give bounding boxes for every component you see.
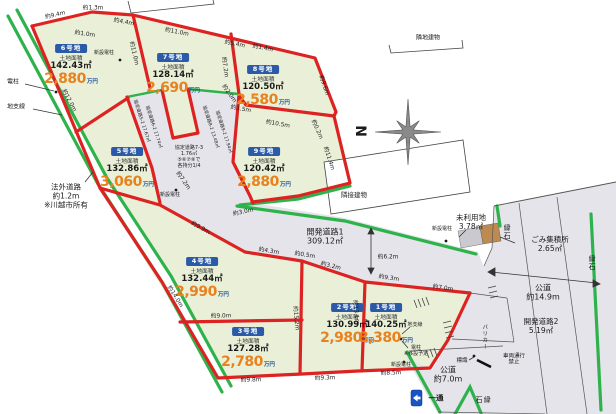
map-note: 地支線: [407, 323, 422, 329]
map-note: バリカー: [481, 324, 487, 350]
dimension-label: 約9.4m: [44, 7, 66, 20]
map-note: 新設電柱: [94, 51, 114, 57]
dimension-label: 約9.8m: [241, 374, 262, 384]
map-note: 縁石: [503, 224, 511, 240]
map-note: N: [355, 125, 372, 137]
plot-price: 2,880万円: [237, 175, 291, 190]
plot-price: 3,380万円: [359, 331, 413, 346]
plot-price: 2,780万円: [221, 355, 275, 370]
plot-price: 3,060万円: [100, 175, 154, 190]
dimension-label: 約9.3m: [378, 271, 400, 283]
dimension-label: 約11.4m: [322, 145, 338, 171]
map-note: ごみ集積所 2.65㎡: [531, 236, 569, 254]
plot-price-unit: 万円: [87, 79, 98, 85]
plot-price: 2,990万円: [175, 285, 229, 300]
map-note: 縁石: [475, 393, 492, 407]
plot-area-value: 142.43㎡: [44, 62, 98, 71]
map-note: 開発道路2 5.19㎡: [524, 318, 559, 336]
dimension-label: 約7.0m: [432, 281, 454, 293]
plot-card-6: 4号地土地面積132.44㎡2,990万円: [175, 250, 229, 299]
dimension-label: 約7.2m: [174, 169, 193, 191]
plot-card-9: 1号地土地面積140.25㎡3,380万円: [359, 296, 413, 345]
dimension-label: 約12.0m: [60, 87, 79, 113]
plot-area-value: 120.42㎡: [237, 165, 291, 174]
dimension-label: 約4.3m: [258, 244, 280, 256]
plot-number-badge: 1号地: [370, 303, 403, 313]
plot-area-value: 120.50㎡: [236, 83, 290, 92]
dimension-label: 約6.2m: [378, 252, 399, 261]
plot-number-badge: 7号地: [157, 53, 190, 63]
map-note: 隣地建物: [416, 34, 440, 41]
map-note: 公道 約14.9m: [526, 284, 560, 303]
plot-card-3: 8号地土地面積120.50㎡2,580万円: [236, 58, 290, 107]
dimension-label: 約11.0m: [128, 40, 142, 66]
land-plot-map: 6号地土地面積142.43㎡2,880万円7号地土地面積128.14㎡2,690…: [0, 0, 616, 414]
plot-number-badge: 4号地: [186, 257, 219, 267]
plot-price: 2,880万円: [44, 72, 98, 87]
dimension-label: 約10.5m: [265, 116, 291, 129]
dimension-label: 約1.3m: [83, 3, 104, 12]
plot-price: 2,690万円: [146, 81, 200, 96]
map-note: 電柱: [7, 78, 19, 85]
plot-area-value: 132.44㎡: [175, 275, 229, 284]
dimension-label: 約0.2m: [310, 118, 327, 141]
map-labels: 6号地土地面積142.43㎡2,880万円7号地土地面積128.14㎡2,690…: [0, 0, 616, 414]
plot-card-4: 5号地土地面積132.86㎡3,060万円: [100, 140, 154, 189]
dimension-label: 約9.6m: [318, 74, 333, 96]
plot-area-value: 132.86㎡: [100, 165, 154, 174]
map-note: 隣接建物: [341, 192, 367, 200]
map-note: 車両通行 禁止: [503, 354, 525, 367]
plot-card-2: 7号地土地面積128.14㎡2,690万円: [146, 46, 200, 95]
plot-price-unit: 万円: [218, 292, 229, 298]
plot-card-1: 6号地土地面積142.43㎡2,880万円: [44, 37, 98, 86]
plot-number-badge: 9号地: [248, 147, 281, 157]
dimension-label: 約9.0m: [211, 310, 232, 319]
dimension-label: 約4.4m: [113, 15, 135, 28]
plot-number-badge: 3号地: [232, 327, 265, 337]
plot-card-7: 3号地土地面積127.28㎡2,780万円: [221, 320, 275, 369]
map-note: 公道 約7.0m: [434, 366, 463, 385]
map-note: 新設電柱: [160, 193, 180, 199]
dimension-label: 約11.0m: [164, 24, 190, 37]
dimension-label: 約1.4m: [252, 41, 274, 54]
dimension-label: 約9.9m: [190, 218, 212, 236]
plot-area-value: 140.25㎡: [359, 321, 413, 330]
plot-price-unit: 万円: [264, 362, 275, 368]
plot-price-unit: 万円: [280, 182, 291, 188]
map-note: 標識: [456, 358, 467, 364]
plot-number-badge: 5号地: [111, 147, 144, 157]
map-note: 新設電柱: [432, 227, 452, 233]
dimension-label: 約9.3m: [315, 372, 336, 382]
dimension-label: 約7.2m: [220, 56, 232, 78]
plot-price-unit: 万円: [189, 88, 200, 94]
dimension-label: 約0.5m: [294, 248, 316, 260]
plot-number-badge: 6号地: [55, 44, 88, 54]
map-note: 法外道路 約1.2m ※川越市所有: [44, 184, 88, 211]
map-note: 未利用地 3.78㎡: [456, 214, 486, 232]
dimension-label: 約5.4m: [224, 37, 246, 50]
plot-area-value: 127.28㎡: [221, 345, 275, 354]
plot-price-unit: 万円: [143, 182, 154, 188]
plot-number-badge: 8号地: [247, 65, 280, 75]
map-note: 協定道路7-3 1.76㎡ ⑤⑥⑦⑧で 各持分1/4: [175, 146, 203, 170]
plot-area-value: 128.14㎡: [146, 71, 200, 80]
map-note: 一通: [429, 395, 444, 404]
dimension-label: 約3.2m: [320, 258, 342, 272]
map-note: 開発道路1 309.12㎡: [306, 228, 343, 247]
plot-price-unit: 万円: [279, 100, 290, 106]
map-note: 縁石: [588, 255, 596, 271]
dimension-label: 約3.0m: [232, 204, 254, 217]
map-note: 地支線: [7, 103, 25, 110]
map-note: 電柱 ※移設予定: [404, 346, 428, 358]
dimension-label: 約15.2m: [291, 305, 302, 330]
plot-card-5: 9号地土地面積120.42㎡2,880万円: [237, 140, 291, 189]
plot-price-unit: 万円: [402, 338, 413, 344]
map-note: 新設電柱: [391, 363, 411, 369]
